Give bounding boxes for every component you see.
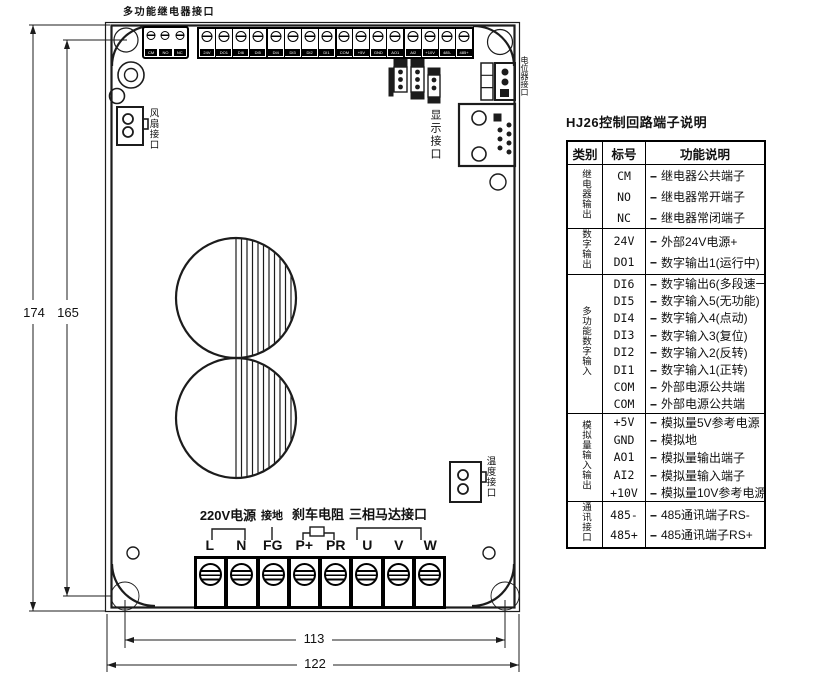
description-cell: --继电器公共端子--继电器常开端子--继电器常闭端子 xyxy=(646,165,766,229)
terminal-tag: COM xyxy=(603,378,645,395)
io-terminal-label: DI4 xyxy=(268,49,283,56)
relay-terminal-label: NO xyxy=(159,49,171,56)
header-description: 功能说明 xyxy=(646,141,766,165)
screw-icon xyxy=(287,31,298,42)
io-terminal-cell: DO1 xyxy=(216,29,233,57)
page: 多功能继电器接口 风扇接口 显示接口 电位器接口 温度接口 174 165 11… xyxy=(0,0,824,682)
category-label: 多功能数字输入 xyxy=(580,306,590,376)
table-group-row: 多功能数字输入DI6DI5DI4DI3DI2DI1COMCOM--数字输出6(多… xyxy=(567,275,765,414)
screw-icon xyxy=(418,563,441,586)
category-cell: 数字输出 xyxy=(567,229,603,275)
terminal-tag: 24V xyxy=(603,231,645,252)
mains-annotation: 220V电源 xyxy=(196,505,260,524)
power-terminal-cell xyxy=(260,559,287,606)
description-text: 继电器常闭端子 xyxy=(661,209,745,226)
terminal-tag: DI2 xyxy=(603,344,645,361)
terminal-description: --485通讯端子RS+ xyxy=(646,525,764,545)
description-text: 数字输入2(反转) xyxy=(661,344,748,361)
io-terminal-cell: 485+ xyxy=(456,29,472,57)
terminal-description: --数字输入2(反转) xyxy=(646,344,764,361)
terminal-tag: DI5 xyxy=(603,292,645,309)
power-terminal-cell xyxy=(385,559,412,606)
terminal-tag: +5V xyxy=(603,414,645,432)
screw-icon xyxy=(321,31,332,42)
description-text: 485通讯端子RS+ xyxy=(661,526,753,543)
io-terminal-cell: 24V xyxy=(199,29,216,57)
brake-resistor-annotation: 刹车电阻 xyxy=(290,504,346,523)
screw-icon xyxy=(356,31,367,42)
table-group-row: 通讯接口485-485+--485通讯端子RS---485通讯端子RS+ xyxy=(567,502,765,549)
relay-terminal-label: NC xyxy=(174,49,186,56)
description-text: 数字输出1(运行中) xyxy=(661,254,760,271)
io-terminal-cell: DI6 xyxy=(233,29,250,57)
dash: -- xyxy=(650,345,656,359)
io-terminal-label: DI2 xyxy=(302,49,317,56)
dash: -- xyxy=(650,328,656,342)
power-terminal-label: U xyxy=(352,537,384,554)
power-terminal-cell xyxy=(291,559,318,606)
description-text: 数字输出6(多段速一) xyxy=(661,275,764,292)
tag-cell: +5VGNDAO1AI2+10V xyxy=(603,413,646,502)
mounting-hole-top-right xyxy=(488,30,513,55)
potentiometer-connector-icon xyxy=(481,63,515,100)
ground-annotation: 接地 xyxy=(258,507,286,523)
io-terminal-label: DO1 xyxy=(216,49,231,56)
temperature-connector-icon xyxy=(450,462,486,502)
terminal-description: --数字输入3(复位) xyxy=(646,327,764,344)
potentiometer-interface-label: 电位器接口 xyxy=(520,56,528,96)
category-label: 模拟量输入输出 xyxy=(580,420,590,490)
category-cell: 模拟量输入输出 xyxy=(567,413,603,502)
relay-terminal-label: CM xyxy=(145,49,157,56)
io-terminal-label: 485+ xyxy=(457,49,472,56)
screw-icon xyxy=(147,31,156,40)
screw-icon xyxy=(293,563,316,586)
screw-icon xyxy=(252,31,263,42)
standoff-ring-icon xyxy=(118,62,144,88)
terminal-description: --继电器公共端子 xyxy=(646,165,764,186)
terminal-tag: CM xyxy=(603,165,645,186)
category-cell: 继电器输出 xyxy=(567,165,603,229)
description-text: 485通讯端子RS- xyxy=(661,506,750,523)
screw-icon xyxy=(324,563,347,586)
screw-icon xyxy=(304,31,315,42)
screw-icon xyxy=(262,563,285,586)
dim-height-outer: 174 xyxy=(20,306,48,320)
io-terminal-label: AO1 xyxy=(388,49,403,56)
io-terminal-cell: AI2 xyxy=(405,29,422,57)
screw-icon xyxy=(201,31,212,42)
io-terminal-label: DI6 xyxy=(233,49,248,56)
screw-icon xyxy=(373,31,384,42)
power-terminal-cell xyxy=(228,559,255,606)
description-text: 继电器常开端子 xyxy=(661,188,745,205)
power-terminal-cell xyxy=(353,559,380,606)
dash: -- xyxy=(650,486,656,500)
dim-height-holes: 165 xyxy=(54,306,82,320)
power-terminal-cell xyxy=(322,559,349,606)
io-terminal-label: +5V xyxy=(354,49,369,56)
io-terminal-cell: COM xyxy=(337,29,354,57)
screw-icon xyxy=(408,31,419,42)
description-text: 模拟量10V参考电源 xyxy=(661,484,764,501)
terminal-tag: GND xyxy=(603,431,645,449)
dash: -- xyxy=(650,397,656,411)
table-title: HJ26控制回路端子说明 xyxy=(566,112,707,131)
tag-cell: 485-485+ xyxy=(603,502,646,549)
dash: -- xyxy=(650,169,656,183)
io-terminal-label: DI1 xyxy=(319,49,334,56)
header-tag: 标号 xyxy=(603,141,646,165)
table-group-row: 继电器输出CMNONC--继电器公共端子--继电器常开端子--继电器常闭端子 xyxy=(567,165,765,229)
header-category: 类别 xyxy=(567,141,603,165)
power-terminal-label: V xyxy=(383,537,415,554)
io-terminal-label: AI2 xyxy=(406,49,421,56)
terminal-tag: AO1 xyxy=(603,449,645,467)
dash: -- xyxy=(650,294,656,308)
io-terminal-cell: +10V xyxy=(422,29,439,57)
io-terminal-cell: AO1 xyxy=(387,29,405,57)
io-terminal-label: GND xyxy=(371,49,386,56)
fillet-bottom-right xyxy=(472,564,514,606)
table-header-row: 类别 标号 功能说明 xyxy=(567,141,765,165)
description-text: 外部电源公共端 xyxy=(661,378,745,395)
dash: -- xyxy=(650,255,656,269)
description-text: 数字输入4(点动) xyxy=(661,309,748,326)
terminal-description: --数字输入5(无功能) xyxy=(646,292,764,309)
io-terminal-cell: GND xyxy=(370,29,387,57)
tag-cell: DI6DI5DI4DI3DI2DI1COMCOM xyxy=(603,275,646,414)
terminal-description: --模拟量5V参考电源 xyxy=(646,414,764,432)
dash: -- xyxy=(650,211,656,225)
terminal-tag: 485+ xyxy=(603,525,645,545)
category-label: 数字输出 xyxy=(580,229,590,269)
screw-icon xyxy=(355,563,378,586)
screw-icon xyxy=(218,31,229,42)
terminal-tag: NO xyxy=(603,186,645,207)
terminal-description: --外部24V电源+ xyxy=(646,231,764,252)
category-cell: 多功能数字输入 xyxy=(567,275,603,414)
dash: -- xyxy=(650,433,656,447)
screw-icon xyxy=(175,31,184,40)
description-text: 外部24V电源+ xyxy=(661,233,737,250)
dash: -- xyxy=(650,528,656,542)
screw-icon xyxy=(230,563,253,586)
tag-cell: CMNONC xyxy=(603,165,646,229)
dim-width-holes: 113 xyxy=(296,632,332,646)
terminal-description-table: 类别 标号 功能说明 继电器输出CMNONC--继电器公共端子--继电器常开端子… xyxy=(566,140,766,549)
terminal-tag: DI3 xyxy=(603,327,645,344)
io-terminal-label: 24V xyxy=(200,49,215,56)
description-cell: --485通讯端子RS---485通讯端子RS+ xyxy=(646,502,766,549)
table-group-row: 模拟量输入输出+5VGNDAO1AI2+10V--模拟量5V参考电源--模拟地-… xyxy=(567,413,765,502)
board-outer-outline xyxy=(106,23,520,612)
terminal-description: --外部电源公共端 xyxy=(646,395,764,412)
terminal-tag: COM xyxy=(603,395,645,412)
dash: -- xyxy=(650,508,656,522)
dash: -- xyxy=(650,311,656,325)
io-terminal-strip: 24VDO1DI6DI5DI4DI3DI2DI1COM+5VGNDAO1AI2+… xyxy=(197,27,474,59)
display-connector-icon xyxy=(459,104,515,166)
screw-icon xyxy=(442,31,453,42)
relay-terminal-cell: NO xyxy=(158,28,172,57)
screw-icon xyxy=(387,563,410,586)
io-terminal-cell: DI2 xyxy=(302,29,319,57)
terminal-description: --继电器常开端子 xyxy=(646,186,764,207)
description-text: 数字输入3(复位) xyxy=(661,327,748,344)
description-cell: --外部24V电源+--数字输出1(运行中) xyxy=(646,229,766,275)
relay-terminal-cell: NC xyxy=(173,28,187,57)
terminal-tag: AI2 xyxy=(603,466,645,484)
io-terminal-cell: DI4 xyxy=(268,29,285,57)
io-terminal-label: +10V xyxy=(423,49,438,56)
power-terminal-label: L xyxy=(194,537,226,554)
screw-icon xyxy=(390,31,401,42)
io-terminal-cell: DI1 xyxy=(319,29,337,57)
power-terminal-strip xyxy=(194,556,446,609)
screw-icon xyxy=(235,31,246,42)
description-text: 外部电源公共端 xyxy=(661,395,745,412)
dash: -- xyxy=(650,363,656,377)
screw-icon xyxy=(199,563,222,586)
capacitor-hatch xyxy=(236,238,291,358)
description-cell: --数字输出6(多段速一)--数字输入5(无功能)--数字输入4(点动)--数字… xyxy=(646,275,766,414)
power-terminal-label: PR xyxy=(320,537,352,554)
terminal-description: --模拟量10V参考电源 xyxy=(646,484,764,502)
terminal-description: --数字输出6(多段速一) xyxy=(646,275,764,292)
table-group-row: 数字输出24VDO1--外部24V电源+--数字输出1(运行中) xyxy=(567,229,765,275)
terminal-tag: DI4 xyxy=(603,309,645,326)
terminal-tag: DI1 xyxy=(603,361,645,378)
terminal-description: --数字输入1(正转) xyxy=(646,361,764,378)
category-label: 继电器输出 xyxy=(580,169,590,219)
terminal-description: --数字输入4(点动) xyxy=(646,309,764,326)
io-terminal-label: COM xyxy=(337,49,352,56)
terminal-tag: DO1 xyxy=(603,252,645,273)
category-label: 通讯接口 xyxy=(580,502,590,542)
terminal-tag: DI6 xyxy=(603,275,645,292)
description-text: 继电器公共端子 xyxy=(661,167,745,184)
terminal-description: --继电器常闭端子 xyxy=(646,207,764,228)
terminal-tag: +10V xyxy=(603,484,645,502)
terminal-description: --模拟量输出端子 xyxy=(646,449,764,467)
description-text: 数字输入1(正转) xyxy=(661,361,748,378)
description-cell: --模拟量5V参考电源--模拟地--模拟量输出端子--模拟量输入端子--模拟量1… xyxy=(646,413,766,502)
relay-terminal-block: CMNONC xyxy=(142,26,189,59)
screw-icon xyxy=(425,31,436,42)
tag-cell: 24VDO1 xyxy=(603,229,646,275)
io-terminal-cell: DI5 xyxy=(250,29,268,57)
screw-icon xyxy=(161,31,170,40)
io-terminal-label: DI3 xyxy=(285,49,300,56)
description-text: 模拟地 xyxy=(661,431,697,448)
io-terminal-cell: +5V xyxy=(353,29,370,57)
screw-icon xyxy=(339,31,350,42)
description-text: 模拟量5V参考电源 xyxy=(661,414,760,431)
dash: -- xyxy=(650,468,656,482)
io-terminal-label: 485- xyxy=(440,49,455,56)
terminal-description: --模拟量输入端子 xyxy=(646,466,764,484)
power-terminal-label: N xyxy=(226,537,258,554)
dash: -- xyxy=(650,234,656,248)
power-terminal-labels: LNFGP+PRUVW xyxy=(194,537,446,554)
terminal-tag: 485- xyxy=(603,505,645,525)
io-terminal-cell: DI3 xyxy=(285,29,302,57)
power-terminal-label: P+ xyxy=(289,537,321,554)
dash: -- xyxy=(650,277,656,291)
dim-width-outer: 122 xyxy=(297,657,333,671)
dash: -- xyxy=(650,190,656,204)
power-terminal-label: W xyxy=(415,537,447,554)
description-text: 模拟量输入端子 xyxy=(661,467,745,484)
relay-interface-label: 多功能继电器接口 xyxy=(123,3,215,18)
terminal-tag: NC xyxy=(603,207,645,228)
display-interface-label: 显示接口 xyxy=(429,109,440,161)
relay-terminal-cell: CM xyxy=(144,28,158,57)
description-text: 数字输入5(无功能) xyxy=(661,292,760,309)
dash: -- xyxy=(650,415,656,429)
screw-icon xyxy=(270,31,281,42)
terminal-description: --数字输出1(运行中) xyxy=(646,252,764,273)
jumper-blocks-icon xyxy=(389,59,440,103)
fan-interface-label: 风扇接口 xyxy=(148,108,158,150)
description-text: 模拟量输出端子 xyxy=(661,449,745,466)
category-cell: 通讯接口 xyxy=(567,502,603,549)
power-terminal-label: FG xyxy=(257,537,289,554)
power-terminal-cell xyxy=(416,559,443,606)
motor-interface-annotation: 三相马达接口 xyxy=(348,504,428,523)
screw-icon xyxy=(459,31,470,42)
terminal-description: --485通讯端子RS- xyxy=(646,505,764,525)
dash: -- xyxy=(650,450,656,464)
terminal-description: --外部电源公共端 xyxy=(646,378,764,395)
temperature-interface-label: 温度接口 xyxy=(485,456,495,498)
io-terminal-label: DI5 xyxy=(250,49,265,56)
power-terminal-cell xyxy=(197,559,224,606)
dash: -- xyxy=(650,380,656,394)
terminal-description: --模拟地 xyxy=(646,431,764,449)
io-terminal-cell: 485- xyxy=(439,29,456,57)
fan-connector-icon xyxy=(117,107,148,145)
